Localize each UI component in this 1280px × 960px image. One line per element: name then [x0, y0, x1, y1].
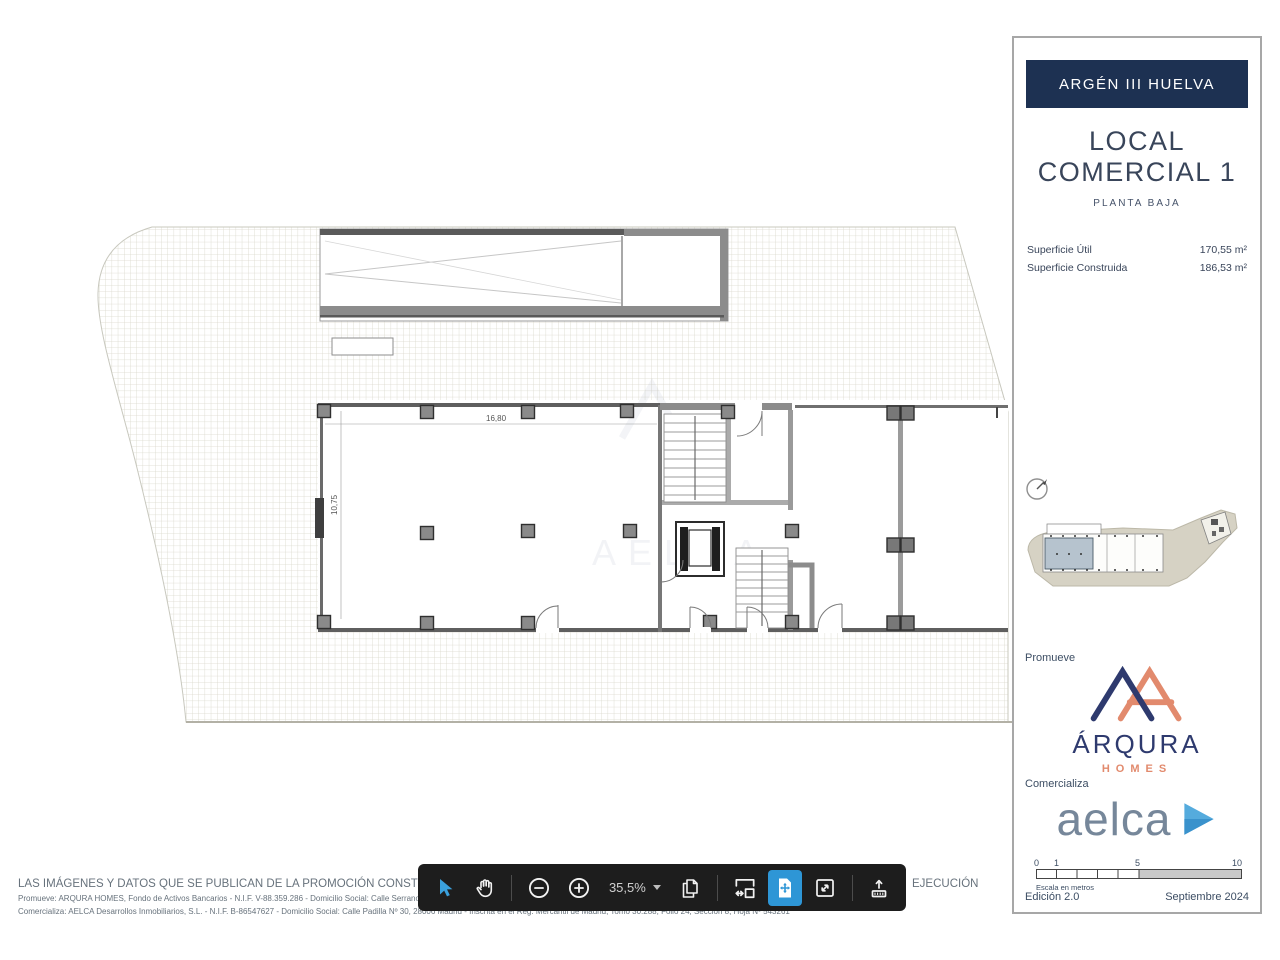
unit-title-block: LOCAL COMERCIAL 1 PLANTA BAJA	[1014, 126, 1260, 209]
site-keyplan	[1023, 476, 1253, 602]
toolbar-divider	[852, 875, 853, 901]
info-panel: ARGÉN III HUELVA LOCAL COMERCIAL 1 PLANT…	[1012, 36, 1262, 914]
surface-label: Superficie Construida	[1027, 262, 1127, 274]
edition-label: Edición 2.0	[1025, 891, 1079, 903]
project-title-banner: ARGÉN III HUELVA	[1026, 60, 1248, 108]
surface-row: Superficie Útil 170,55 m²	[1027, 244, 1247, 256]
zoom-level-value: 35,5%	[609, 880, 646, 895]
scale-tick-10: 10	[1232, 858, 1242, 868]
surface-label: Superficie Útil	[1027, 244, 1092, 256]
staircase-lower	[736, 548, 788, 628]
toolbar-divider	[511, 875, 512, 901]
dimension-height-label: 10,75	[330, 494, 339, 515]
surface-value: 170,55 m²	[1200, 244, 1247, 256]
scale-numbers: 0 1 5 10	[1036, 858, 1242, 869]
elevator	[676, 522, 724, 576]
fit-width-icon	[732, 875, 758, 901]
scale-tick-0: 0	[1034, 858, 1039, 868]
scale-bar-graphic	[1036, 869, 1242, 879]
chevron-down-icon	[653, 885, 661, 890]
hand-icon	[473, 876, 497, 900]
project-title: ARGÉN III HUELVA	[1059, 76, 1215, 93]
aelca-triangle-icon	[1181, 801, 1217, 837]
fit-page-button[interactable]	[768, 870, 801, 906]
toolbar-divider	[717, 875, 718, 901]
fullscreen-icon	[813, 876, 837, 900]
staircase-upper	[664, 414, 726, 502]
select-tool-button[interactable]	[428, 870, 461, 906]
legal-disclaimer-tail: EJECUCIÓN	[912, 878, 978, 890]
fullscreen-button[interactable]	[809, 870, 842, 906]
unit-title-line2: COMERCIAL 1	[1014, 157, 1260, 188]
viewer-toolbar: 35,5%	[418, 864, 906, 911]
scale-tick-5: 5	[1135, 858, 1140, 868]
keyplan-drawing	[1028, 510, 1237, 586]
arqura-wordmark: ÁRQURA	[1014, 729, 1260, 760]
aelca-logo: aelca	[1014, 796, 1260, 842]
fit-page-icon	[773, 876, 797, 900]
surface-row: Superficie Construida 186,53 m²	[1027, 262, 1247, 274]
scale-tick-1: 1	[1054, 858, 1059, 868]
dimension-width-label: 16,80	[486, 414, 507, 423]
export-button[interactable]	[863, 870, 896, 906]
promoter-label: Promueve	[1025, 652, 1075, 664]
zoom-level-dropdown[interactable]: 35,5%	[603, 880, 667, 895]
pan-tool-button[interactable]	[468, 870, 501, 906]
legal-promoter-line: Promueve: ARQURA HOMES, Fondo de Activos…	[18, 894, 431, 903]
cursor-icon	[433, 876, 457, 900]
export-icon	[867, 876, 891, 900]
agent-label: Comercializa	[1025, 778, 1089, 790]
zoom-in-button[interactable]	[563, 870, 596, 906]
arqura-logo-icon	[1082, 666, 1192, 722]
zoom-out-button[interactable]	[522, 870, 555, 906]
aelca-wordmark: aelca	[1057, 796, 1172, 842]
surface-value: 186,53 m²	[1200, 262, 1247, 274]
arqura-homes-label: HOMES	[1014, 763, 1260, 775]
date-label: Septiembre 2024	[1165, 891, 1249, 903]
unit-title-line1: LOCAL	[1014, 126, 1260, 157]
ramp-structure	[320, 229, 728, 321]
building-footprint	[318, 400, 1008, 632]
floor-label: PLANTA BAJA	[1014, 198, 1260, 209]
zoom-out-icon	[526, 875, 552, 901]
copy-pages-icon	[678, 876, 702, 900]
surface-table: Superficie Útil 170,55 m² Superficie Con…	[1027, 244, 1247, 280]
scale-bar: 0 1 5 10 Escala en metros	[1036, 858, 1242, 892]
page-thumbnails-button[interactable]	[674, 870, 707, 906]
viewer-stage: AELCA	[0, 0, 1280, 960]
north-compass-icon	[1027, 479, 1047, 499]
arqura-logo: ÁRQURA HOMES	[1014, 666, 1260, 775]
fit-width-button[interactable]	[728, 870, 761, 906]
zoom-in-icon	[566, 875, 592, 901]
exterior-element	[332, 338, 393, 355]
sheet-footer: Edición 2.0 Septiembre 2024	[1025, 891, 1249, 903]
